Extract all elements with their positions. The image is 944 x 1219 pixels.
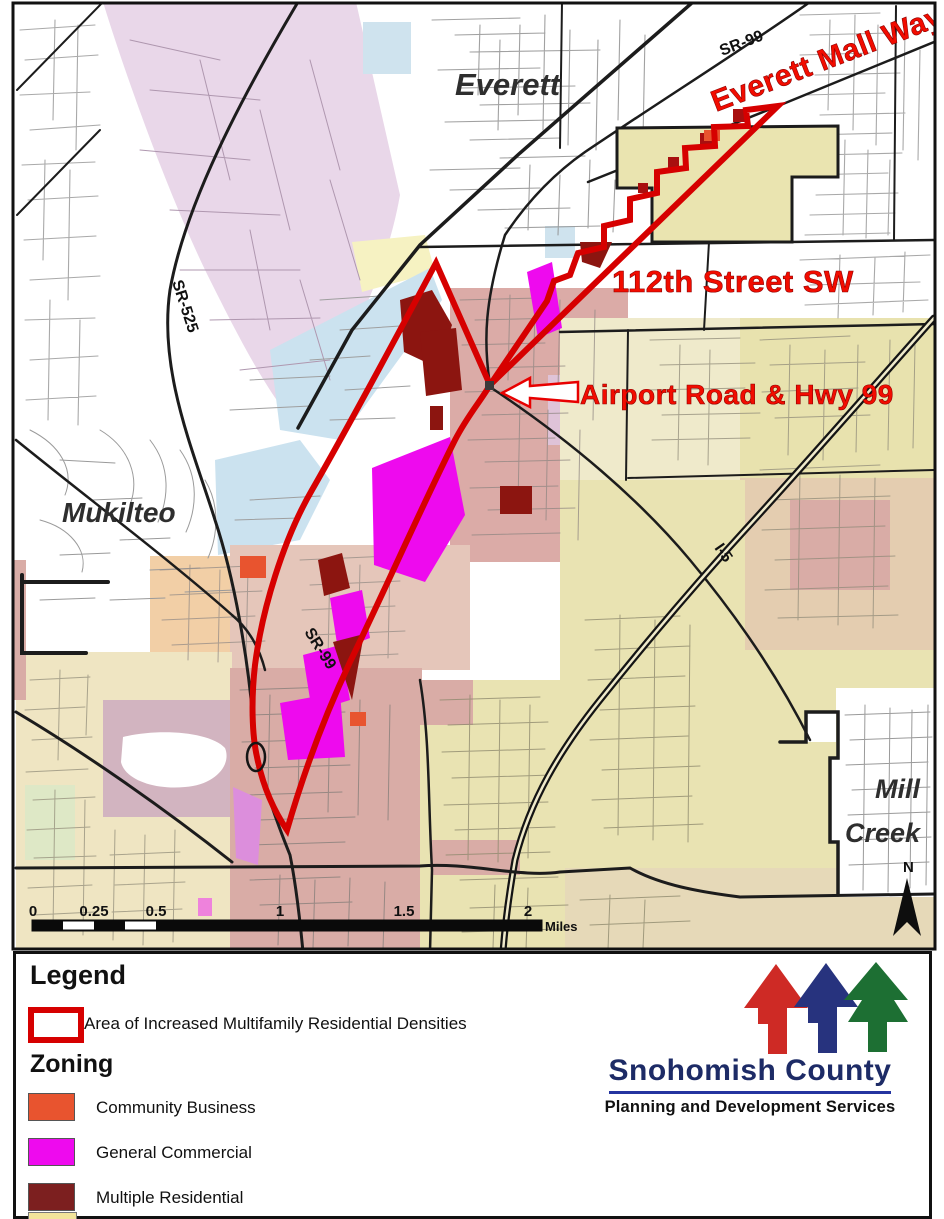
map-document: Everett Mukilteo Mill Creek SR-99 SR-525…	[0, 0, 944, 1219]
legend-item-general-commercial: General Commercial	[28, 1138, 628, 1168]
city-label-mill-creek-line1: Mill	[875, 774, 920, 804]
svg-text:2: 2	[524, 903, 532, 920]
svg-text:0.25: 0.25	[79, 903, 108, 920]
scale-unit: Miles	[545, 919, 578, 934]
north-label: N	[903, 859, 914, 876]
zoning-map: Everett Mukilteo Mill Creek SR-99 SR-525…	[0, 0, 944, 952]
legend-item-multiple-residential: Multiple Residential	[28, 1183, 628, 1213]
community-business-label: Community Business	[96, 1098, 256, 1118]
community-business-swatch	[28, 1093, 75, 1121]
legend-title: Legend	[30, 960, 126, 991]
annotation-airport-road: Airport Road & Hwy 99	[580, 379, 894, 410]
multiple-residential-swatch	[28, 1183, 75, 1211]
map-canvas: Everett Mukilteo Mill Creek SR-99 SR-525…	[0, 0, 944, 952]
city-label-mukilteo: Mukilteo	[62, 497, 176, 528]
annotation-112th-street: 112th Street SW	[612, 264, 854, 299]
intersection-marker	[485, 381, 494, 390]
legend-item-community-business: Community Business	[28, 1093, 628, 1123]
legend-panel: Legend Area of Increased Multifamily Res…	[13, 951, 932, 1219]
area-of-increased-density-label: Area of Increased Multifamily Residentia…	[84, 1014, 467, 1034]
multiple-residential-label: Multiple Residential	[96, 1188, 243, 1208]
partial-yellow-swatch	[28, 1212, 77, 1219]
general-commercial-swatch	[28, 1138, 75, 1166]
snohomish-county-logo-icon	[740, 962, 930, 1062]
svg-text:1.5: 1.5	[394, 903, 415, 920]
svg-text:1: 1	[276, 903, 284, 920]
logo-red-arrow-icon	[744, 964, 808, 1054]
svg-text:0.5: 0.5	[146, 903, 167, 920]
city-label-mill-creek-line2: Creek	[845, 818, 922, 848]
area-of-increased-density-swatch	[28, 1007, 84, 1043]
general-commercial-label: General Commercial	[96, 1143, 252, 1163]
logo-text-block: Snohomish County Planning and Developmen…	[564, 1054, 936, 1117]
city-label-everett: Everett	[455, 67, 562, 102]
svg-text:0: 0	[29, 903, 37, 920]
zoning-title: Zoning	[30, 1050, 113, 1079]
logo-org-name: Snohomish County	[609, 1054, 892, 1094]
logo-department: Planning and Development Services	[564, 1098, 936, 1117]
